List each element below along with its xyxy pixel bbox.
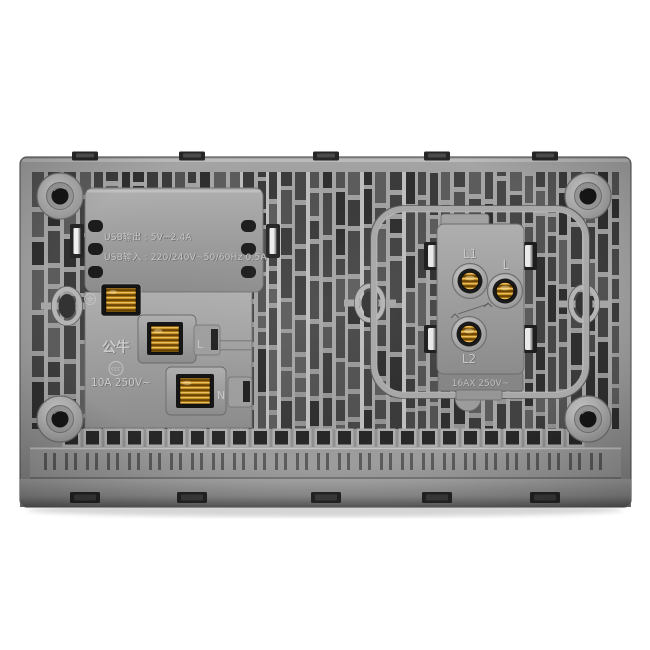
- wall-plate-back: USB输出 : 5V⎓2.4A USB输出 : 5V⎓2.4A USB输入 : …: [20, 152, 631, 508]
- photo-vignette: [20, 157, 631, 507]
- product-photo-wall-socket-back: USB输出 : 5V⎓2.4A USB输出 : 5V⎓2.4A USB输入 : …: [0, 0, 650, 650]
